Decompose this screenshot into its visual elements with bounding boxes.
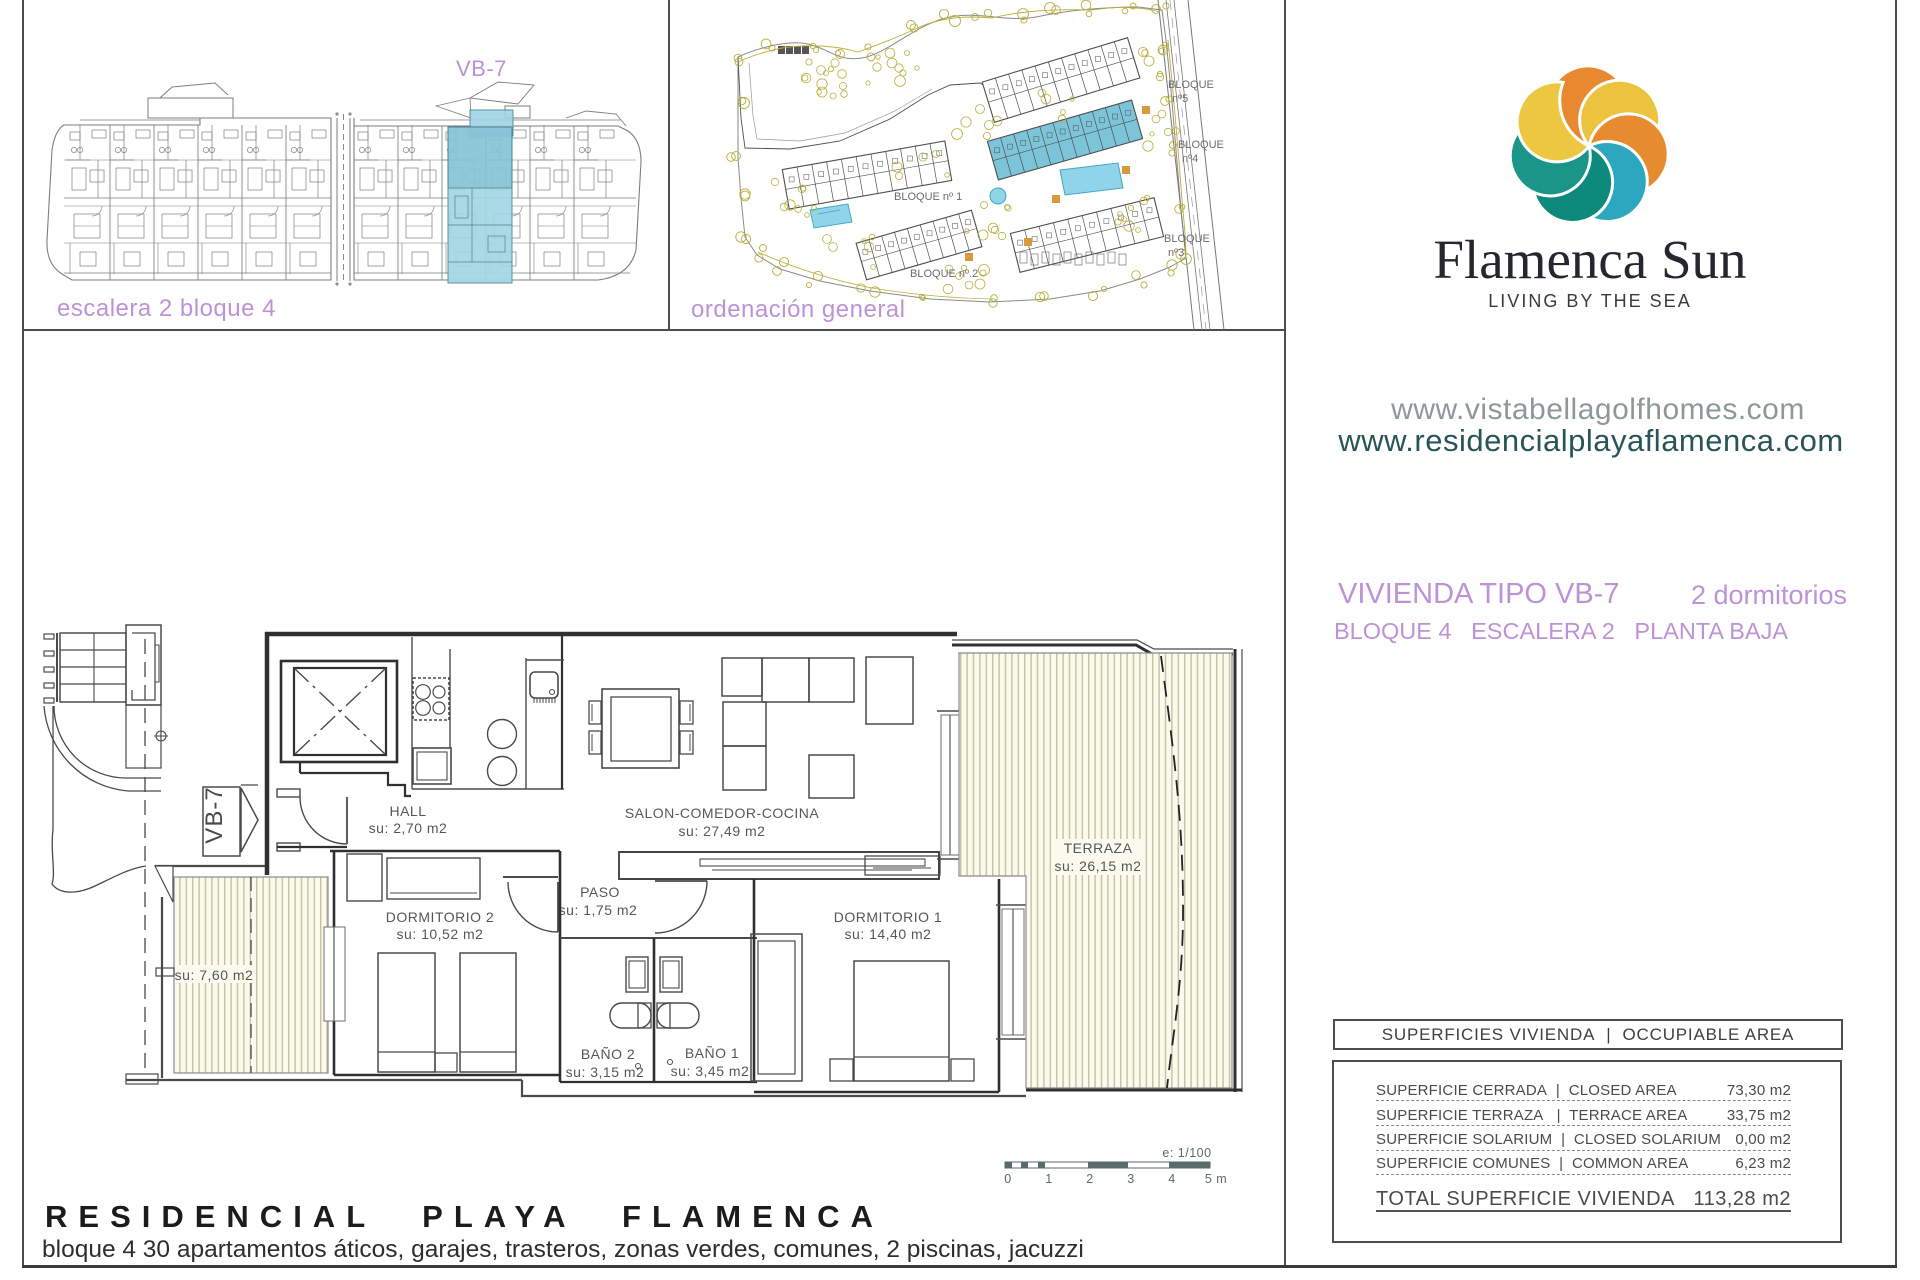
svg-text:BAÑO 1: BAÑO 1 bbox=[685, 1045, 739, 1061]
svg-text:VB-7: VB-7 bbox=[201, 786, 228, 843]
svg-text:3: 3 bbox=[1127, 1172, 1134, 1186]
svg-text:4: 4 bbox=[1168, 1172, 1175, 1186]
svg-text:su: 3,15 m2: su: 3,15 m2 bbox=[566, 1064, 645, 1080]
svg-text:PASO: PASO bbox=[580, 884, 620, 900]
svg-text:su: 2,70 m2: su: 2,70 m2 bbox=[369, 820, 448, 836]
svg-text:SALON-COMEDOR-COCINA: SALON-COMEDOR-COCINA bbox=[625, 805, 820, 821]
svg-text:DORMITORIO 1: DORMITORIO 1 bbox=[834, 909, 942, 925]
svg-text:e: 1/100: e: 1/100 bbox=[1162, 1146, 1211, 1160]
svg-text:su: 27,49 m2: su: 27,49 m2 bbox=[679, 823, 766, 839]
svg-text:BAÑO 2: BAÑO 2 bbox=[581, 1046, 635, 1062]
svg-text:su: 3,45 m2: su: 3,45 m2 bbox=[671, 1063, 750, 1079]
svg-text:su: 1,75 m2: su: 1,75 m2 bbox=[559, 902, 638, 918]
svg-text:HALL: HALL bbox=[389, 803, 426, 819]
svg-text:su: 14,40 m2: su: 14,40 m2 bbox=[845, 926, 932, 942]
svg-text:su: 26,15 m2: su: 26,15 m2 bbox=[1055, 858, 1142, 874]
svg-text:2: 2 bbox=[1086, 1172, 1093, 1186]
svg-text:0: 0 bbox=[1004, 1172, 1011, 1186]
svg-text:5 m: 5 m bbox=[1205, 1172, 1227, 1186]
svg-text:TERRAZA: TERRAZA bbox=[1064, 840, 1133, 856]
svg-text:su: 7,60 m2: su: 7,60 m2 bbox=[175, 967, 254, 983]
svg-text:1: 1 bbox=[1045, 1172, 1052, 1186]
svg-text:su: 10,52 m2: su: 10,52 m2 bbox=[397, 926, 484, 942]
svg-text:DORMITORIO 2: DORMITORIO 2 bbox=[386, 909, 494, 925]
